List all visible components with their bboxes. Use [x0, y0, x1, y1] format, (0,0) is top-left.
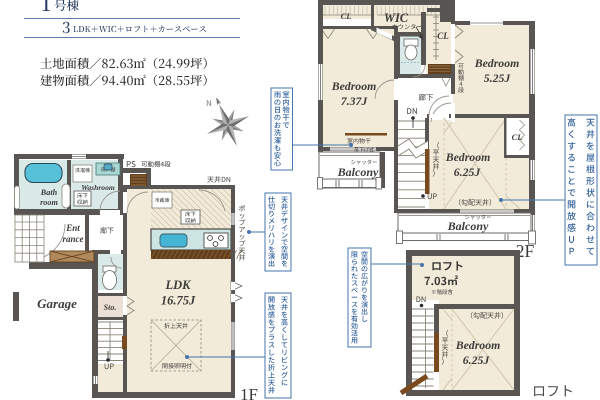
- svg-text:Bedroom: Bedroom: [455, 338, 501, 352]
- svg-text:Sto.: Sto.: [104, 303, 117, 312]
- svg-text:Balcony: Balcony: [447, 219, 489, 233]
- svg-text:CL: CL: [341, 11, 352, 21]
- svg-text:room: room: [40, 198, 58, 207]
- svg-text:1F: 1F: [240, 385, 258, 400]
- svg-text:Garage: Garage: [37, 296, 77, 311]
- svg-text:6.25J: 6.25J: [463, 353, 491, 367]
- svg-text:WIC: WIC: [384, 11, 409, 25]
- svg-text:6.25J: 6.25J: [454, 165, 482, 179]
- svg-text:CL: CL: [437, 31, 449, 41]
- svg-text:Balcony: Balcony: [337, 165, 379, 179]
- svg-text:CL: CL: [512, 132, 523, 142]
- svg-text:Bath: Bath: [40, 188, 58, 197]
- svg-text:5.25J: 5.25J: [484, 71, 512, 85]
- svg-text:rance: rance: [63, 234, 84, 244]
- svg-text:7.37J: 7.37J: [341, 94, 369, 108]
- svg-text:Bedroom: Bedroom: [331, 79, 377, 93]
- svg-text:Bedroom: Bedroom: [474, 56, 520, 70]
- svg-text:LDK: LDK: [165, 278, 193, 292]
- svg-text:16.75J: 16.75J: [161, 294, 196, 308]
- svg-text:Ent: Ent: [65, 223, 80, 233]
- svg-text:Bedroom: Bedroom: [445, 150, 491, 164]
